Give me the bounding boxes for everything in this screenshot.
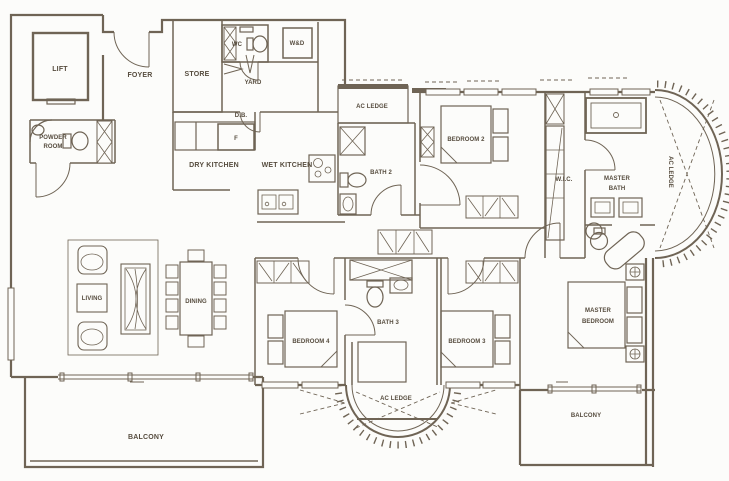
room-label-wic: W.I.C.: [556, 177, 573, 183]
room-label-dry-kitchen: DRY KITCHEN: [189, 162, 239, 169]
wardrobes: [257, 196, 518, 283]
room-label-balcony-left: BALCONY: [128, 434, 164, 441]
room-label-master-bath-line2: BATH: [609, 186, 626, 192]
room-label-bath3: BATH 3: [377, 320, 399, 326]
room-label-wet-kitchen: WET KITCHEN: [262, 162, 313, 169]
room-label-balcony-right: BALCONY: [571, 413, 601, 419]
room-label-ac-ledge-bottom: AC LEDGE: [380, 396, 412, 402]
room-label-wc: WC: [232, 42, 243, 48]
room-label-living: LIVING: [82, 296, 103, 302]
room-label-bath2: BATH 2: [370, 170, 392, 176]
room-label-bedroom3: BEDROOM 3: [448, 339, 486, 345]
room-label-dining: DINING: [185, 299, 207, 305]
windows: [8, 27, 650, 388]
room-label-powder-room-line1: POWDER: [39, 135, 67, 141]
room-labels: LIFT FOYER STORE WC W&D YARD D.B. F DRY …: [39, 41, 673, 441]
room-label-yard: YARD: [245, 80, 262, 86]
room-label-foyer: FOYER: [127, 72, 152, 79]
room-label-fridge: F: [234, 136, 238, 142]
room-label-store: STORE: [185, 71, 210, 78]
bath2-fixtures: [340, 127, 366, 214]
room-label-master-bath-line1: MASTER: [604, 176, 630, 182]
room-label-bedroom2: BEDROOM 2: [447, 137, 485, 143]
room-label-bedroom4: BEDROOM 4: [292, 339, 330, 345]
room-label-ac-ledge-right: AC LEDGE: [667, 156, 673, 188]
bed-bedroom2: [441, 106, 508, 163]
room-label-lift: LIFT: [52, 66, 68, 73]
room-label-powder-room-line2: ROOM: [43, 144, 62, 150]
floor-plan-canvas: LIFT FOYER STORE WC W&D YARD D.B. F DRY …: [0, 0, 729, 481]
floor-plan: LIFT FOYER STORE WC W&D YARD D.B. F DRY …: [0, 0, 729, 481]
room-label-washer-dryer: W&D: [290, 41, 305, 47]
walls-outer: [11, 15, 655, 467]
room-label-ac-ledge-top: AC LEDGE: [356, 104, 388, 110]
room-label-master-bedroom-line1: MASTER: [585, 308, 611, 314]
door-swings: [36, 32, 615, 335]
room-label-db: D.B.: [235, 113, 248, 119]
room-label-master-bedroom-line2: BEDROOM: [582, 319, 614, 325]
sliding-doors: [58, 373, 641, 393]
wc-fixtures: [240, 27, 267, 52]
